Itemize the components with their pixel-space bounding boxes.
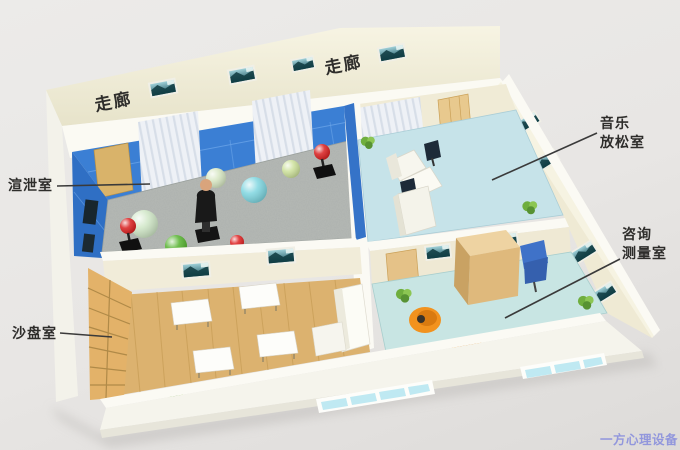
floorplan-render: 走廊 走廊	[0, 0, 680, 450]
desk	[454, 230, 520, 305]
stool-chair	[409, 307, 441, 333]
wall-picture	[424, 243, 452, 261]
room-label-venting: 渲泄室	[8, 177, 53, 196]
room-label-music: 音乐 放松室	[600, 115, 645, 153]
wall-picture	[266, 246, 297, 265]
room-label-consult-line1: 咨询	[622, 226, 667, 245]
exercise-ball	[241, 177, 267, 203]
door-frame	[82, 233, 95, 252]
room-label-music-line1: 音乐	[600, 115, 645, 134]
wall-picture	[181, 260, 212, 279]
room-label-consult: 咨询 测量室	[622, 226, 667, 264]
room-label-sand: 沙盘室	[12, 325, 57, 344]
exercise-ball	[282, 160, 300, 178]
room-label-consult-line2: 测量室	[622, 245, 667, 264]
room-label-music-line2: 放松室	[600, 134, 645, 153]
watermark: 一方心理设备qgng.com	[548, 429, 678, 450]
long-table	[312, 322, 346, 356]
scene-canvas: 走廊 走廊	[0, 0, 680, 450]
